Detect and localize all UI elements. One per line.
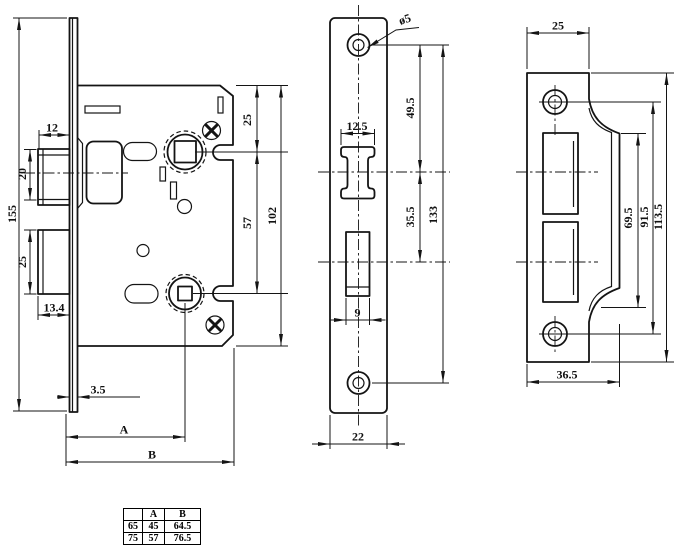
case-slot-right: [218, 97, 223, 113]
case-slot-top: [85, 106, 120, 113]
table-cell: 64.5: [165, 521, 201, 533]
dims-faceplate: ø5 12.5 49.5 35.5 133 9 22: [312, 11, 449, 449]
size-table-corner-cell: [124, 509, 143, 521]
dim-strike-top-width: 25: [552, 19, 564, 33]
bottom-screw-icon: [206, 316, 224, 334]
dim-latch-to-bolt: 35.5: [403, 207, 417, 228]
size-table-header-b: B: [165, 509, 201, 521]
dim-plate-width: 22: [352, 430, 364, 444]
table-cell: 45: [143, 521, 165, 533]
view-lock-body: [24, 18, 233, 412]
dim-deadbolt-height: 25: [15, 256, 29, 268]
strike-plate-outline: [527, 73, 620, 362]
table-cell: 65: [124, 521, 143, 533]
strike-top-screw-hole: [543, 85, 567, 136]
size-table-row: 75 57 76.5: [124, 533, 201, 545]
dim-spindle-to-turn: 57: [240, 217, 254, 229]
latch-housing: [87, 142, 123, 204]
dim-case-height: 102: [265, 207, 279, 225]
strike-lip-fold-line: [589, 108, 612, 311]
dim-screw-spacing: 133: [426, 206, 440, 224]
dim-screw-hole-dia: ø5: [397, 11, 413, 28]
deadbolt: [38, 230, 70, 294]
dim-strike-bottom-width: 36.5: [557, 368, 578, 382]
view-strike-plate: [516, 73, 620, 362]
table-cell: 57: [143, 533, 165, 545]
size-table: A B 65 45 64.5 75 57 76.5: [123, 508, 201, 545]
latch-bolt: [38, 149, 70, 205]
dim-screw-to-latch: 49.5: [403, 98, 417, 119]
small-hole-2: [137, 245, 149, 257]
dim-top-to-spindle: 25: [240, 114, 254, 126]
dim-faceplate-thickness: 3.5: [91, 383, 106, 397]
strike-latch-opening: [543, 133, 578, 214]
size-table-row: 65 45 64.5: [124, 521, 201, 533]
latch-cutout: [341, 147, 375, 199]
dim-backset-label: A: [120, 423, 129, 437]
dim-latch-cutout-width: 12.5: [347, 119, 368, 133]
size-table-header-a: A: [143, 509, 165, 521]
bolt-cutout: [346, 232, 370, 296]
table-cell: 75: [124, 533, 143, 545]
small-hole-1: [178, 200, 192, 214]
table-cell: 76.5: [165, 533, 201, 545]
dim-strike-plate-height: 113.5: [651, 204, 665, 230]
case-slot-mid1: [160, 167, 166, 181]
dim-latch-height: 20: [15, 168, 29, 180]
drawing-sheet: 12 20 155 25 13.4 3.5 A B 25 57 102: [0, 0, 694, 549]
size-table-header-row: A B: [124, 509, 201, 521]
oval-slot-top: [124, 143, 157, 161]
lock-case-outline: [78, 86, 234, 347]
dim-strike-screw-spacing: 91.5: [637, 207, 651, 228]
case-slot-mid2: [171, 182, 177, 199]
lock-technical-drawing: 12 20 155 25 13.4 3.5 A B 25 57 102: [0, 0, 694, 549]
dim-deadbolt-protrusion: 13.4: [44, 301, 65, 315]
dim-latch-protrusion: 12: [46, 121, 58, 135]
oval-slot-bottom: [125, 285, 158, 304]
dim-lip-length: 69.5: [621, 208, 635, 229]
dim-bolt-cutout-width: 9: [355, 306, 361, 320]
dim-total-height: 155: [5, 205, 19, 223]
dim-case-depth-label: B: [148, 448, 156, 462]
top-screw-icon: [203, 122, 221, 140]
forend-plate-edge: [70, 18, 78, 412]
